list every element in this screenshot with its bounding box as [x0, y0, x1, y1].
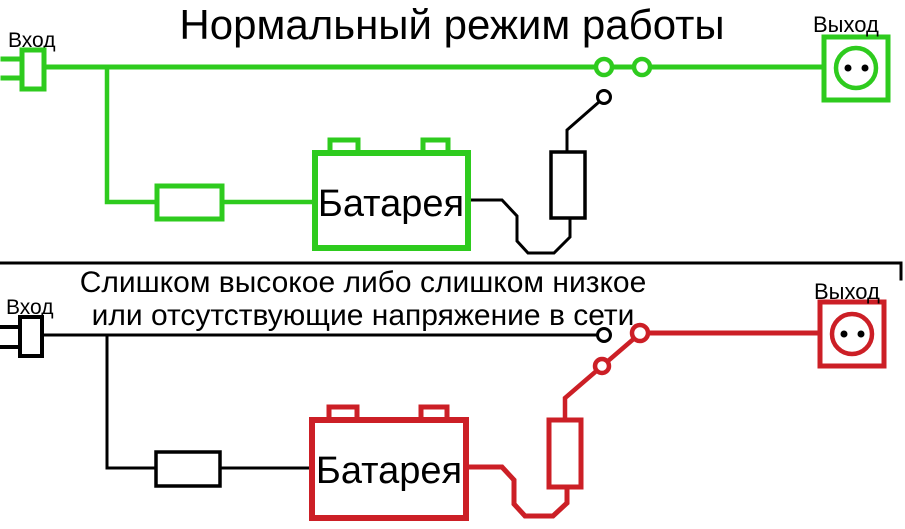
inverter-box	[551, 152, 585, 218]
switch-contact-icon	[632, 325, 648, 341]
charger-branch-wire	[107, 335, 154, 468]
charger-box	[156, 452, 220, 486]
output-socket-icon	[820, 302, 884, 366]
battery-icon: Батарея	[312, 407, 466, 518]
charger-box	[157, 186, 222, 219]
panel-caption-line2: или отсутствующие напряжение в сети	[92, 299, 635, 332]
normal-mode-panel: Нормальный режим работы Вход	[3, 1, 888, 253]
output-label: Выход	[814, 279, 880, 304]
output-socket-icon	[824, 37, 888, 100]
switch-contact-icon	[596, 59, 612, 75]
inverter-box	[549, 420, 581, 487]
battery-mode-panel: Слишком высокое либо слишком низкое или …	[2, 266, 884, 518]
open-contact-icon	[598, 91, 611, 104]
switch-pivot-icon	[595, 359, 609, 373]
battery-label: Батарея	[318, 183, 464, 225]
output-label: Выход	[813, 12, 879, 37]
ups-modes-diagram: Нормальный режим работы Вход	[0, 0, 905, 529]
diagram-canvas: Нормальный режим работы Вход	[0, 0, 905, 529]
battery-label: Батарея	[316, 450, 462, 492]
socket-pin-hole	[858, 331, 865, 338]
input-plug-icon	[2, 317, 42, 356]
socket-pin-hole	[845, 65, 852, 72]
battery-icon: Батарея	[315, 140, 468, 248]
inverter-arm-open	[567, 91, 611, 153]
charger-branch-wire	[107, 67, 155, 202]
panel-title: Нормальный режим работы	[179, 1, 724, 48]
panel-caption-line1: Слишком высокое либо слишком низкое	[80, 266, 647, 299]
open-contact-icon	[598, 329, 611, 342]
switch-contact-icon	[634, 59, 650, 75]
socket-pin-hole	[841, 331, 848, 338]
socket-pin-hole	[862, 65, 869, 72]
input-plug-icon	[3, 50, 44, 89]
